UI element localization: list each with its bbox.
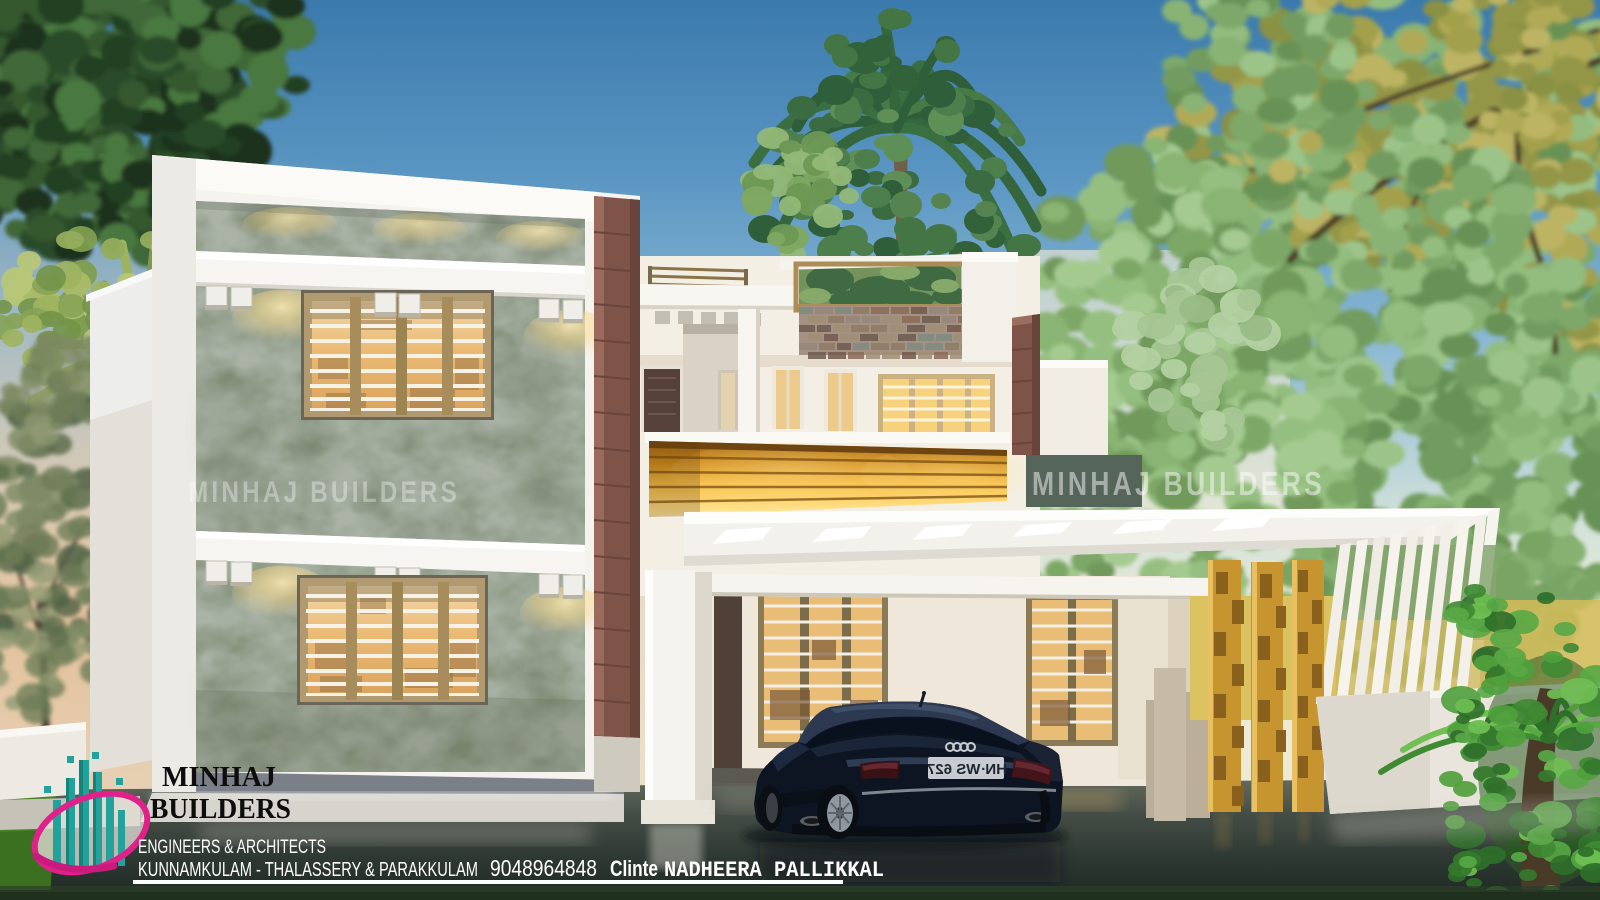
svg-text:NADHEERA PALLIKKAL: NADHEERA PALLIKKAL <box>664 858 884 883</box>
svg-text:MINHAJ: MINHAJ <box>162 761 276 793</box>
svg-text:KUNNAMKULAM - THALASSERY & PAR: KUNNAMKULAM - THALASSERY & PARAKKULAM <box>138 859 478 881</box>
svg-text:ENGINEERS & ARCHITECTS: ENGINEERS & ARCHITECTS <box>138 837 326 858</box>
svg-text:HN·WS 627: HN·WS 627 <box>927 761 1007 778</box>
svg-text:MINHAJ BUILDERS: MINHAJ BUILDERS <box>1032 465 1325 502</box>
svg-text:MINHAJ BUILDERS: MINHAJ BUILDERS <box>188 476 460 509</box>
svg-text:BUILDERS: BUILDERS <box>150 793 291 825</box>
svg-text:Clinte: Clinte <box>610 856 658 881</box>
svg-text:9048964848: 9048964848 <box>490 855 597 881</box>
